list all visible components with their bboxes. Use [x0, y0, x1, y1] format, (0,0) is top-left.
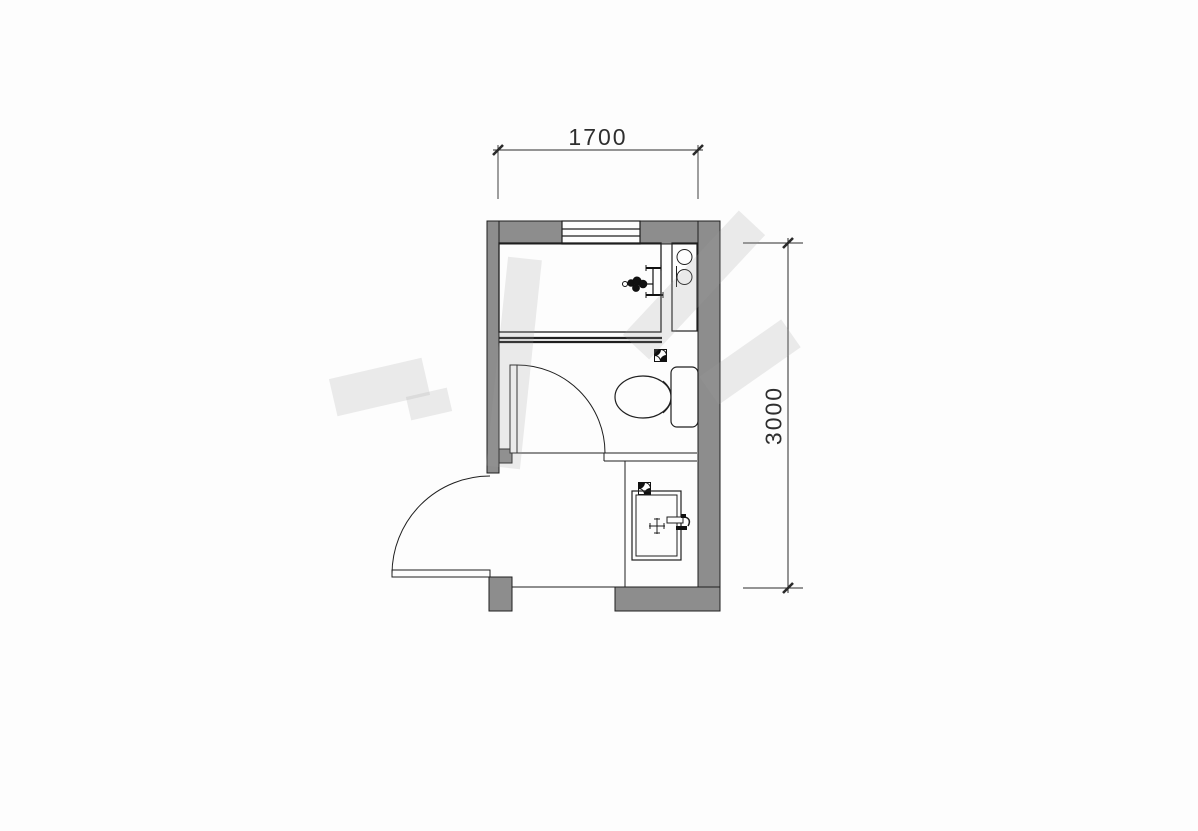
floor-drain-shower-icon: [655, 350, 667, 362]
shower-area: [499, 243, 697, 342]
shelf-ring-top-icon: [677, 250, 692, 265]
wall-left: [487, 221, 499, 473]
basin-drain-crosshair-icon: [649, 518, 665, 534]
sliding-door: [499, 338, 662, 342]
shelf-ring-bottom-icon: [677, 270, 692, 285]
floor-plan-canvas: 1700 3000: [0, 0, 1198, 831]
entry-door-jamb: [489, 577, 512, 611]
window: [562, 221, 640, 244]
basin-faucet-icon: [667, 514, 689, 530]
floor-drain-basin-icon: [639, 483, 651, 495]
toilet-door: [510, 365, 605, 453]
wash-basin: [632, 491, 689, 560]
dimension-right-label: 3000: [761, 366, 788, 466]
shower-mixer-icon: [623, 265, 664, 298]
toilet-door-swing-arc: [517, 365, 605, 453]
toilet-door-leaf: [510, 365, 517, 453]
wall-bottom: [615, 587, 720, 611]
entry-door-swing-arc: [392, 476, 490, 574]
toilet: [615, 367, 698, 427]
dimension-top-label: 1700: [548, 124, 648, 151]
wall-right: [698, 221, 720, 611]
dimension-top: [493, 145, 703, 199]
shower-shelf: [672, 243, 697, 331]
entry-door: [392, 476, 490, 577]
entry-door-leaf: [392, 570, 490, 577]
toilet-bowl: [615, 376, 671, 418]
toilet-tank: [671, 367, 698, 427]
